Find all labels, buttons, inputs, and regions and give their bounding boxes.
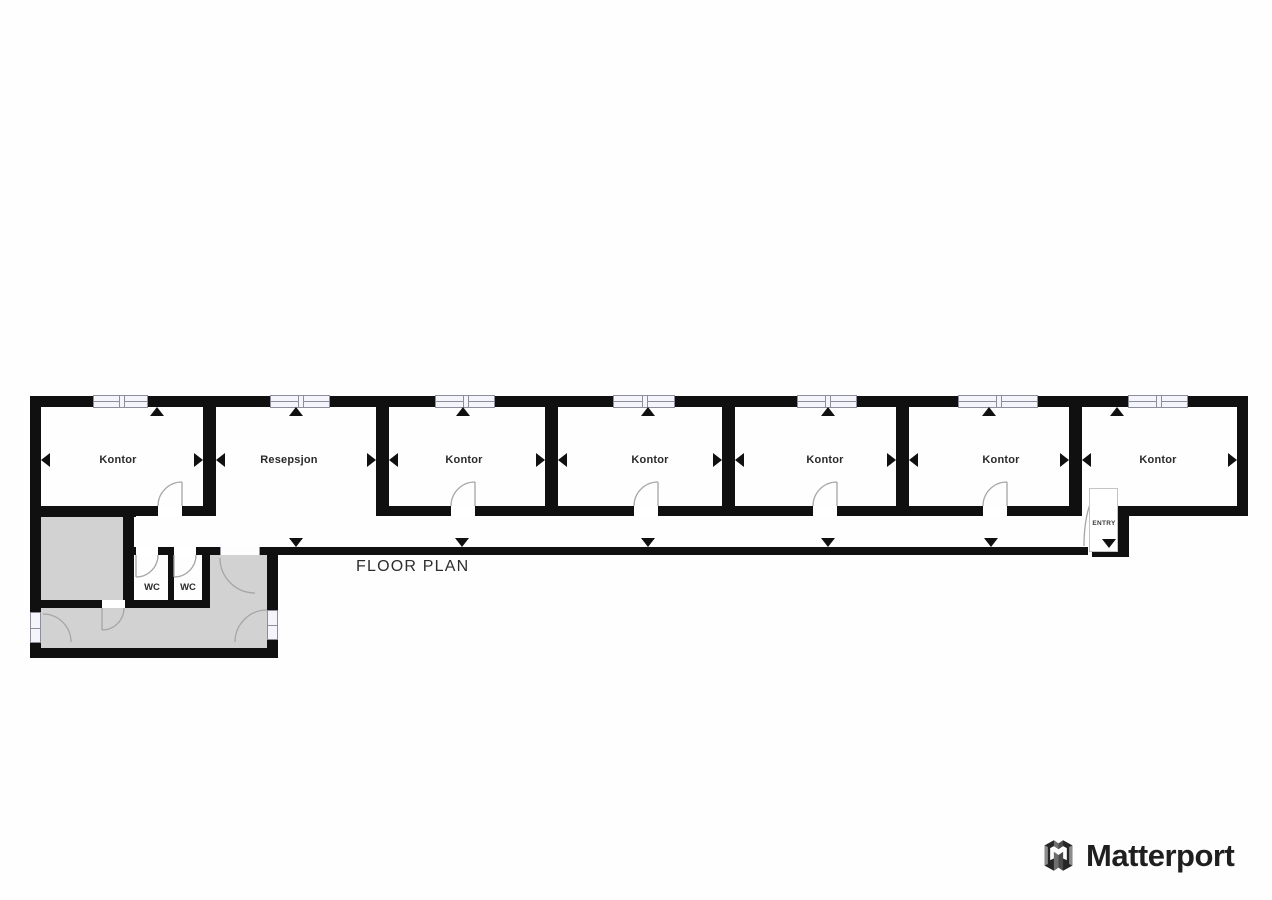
triangle-marker-icon (641, 538, 655, 547)
triangle-marker-icon (982, 407, 996, 416)
door-arc (634, 482, 658, 506)
wall (203, 396, 216, 516)
window-frame (119, 396, 125, 407)
wall (30, 506, 136, 517)
wall (722, 396, 735, 516)
triangle-marker-icon (984, 538, 998, 547)
triangle-marker-icon (641, 407, 655, 416)
wall (202, 547, 210, 608)
door-opening (634, 506, 658, 516)
triangle-marker-icon (1228, 453, 1237, 467)
door-opening (102, 600, 125, 608)
wall (30, 396, 41, 612)
matterport-branding: Matterport (1040, 837, 1234, 874)
door-opening (158, 506, 182, 516)
room-label-wc-2: WC (180, 582, 196, 593)
door-opening (813, 506, 837, 516)
triangle-marker-icon (194, 453, 203, 467)
door-opening (983, 506, 1007, 516)
triangle-marker-icon (289, 407, 303, 416)
room-label-kontor-3: Kontor (631, 454, 668, 466)
floor-plan-page: ENTRY Kontor Resepsjon Kontor Kontor Kon… (0, 0, 1272, 900)
triangle-marker-icon (216, 453, 225, 467)
door-arc (136, 555, 158, 577)
door-opening (136, 547, 158, 555)
door-arc (158, 482, 182, 506)
wall (267, 547, 278, 610)
window-frame (642, 396, 648, 407)
window-frame (268, 625, 277, 626)
wall (1069, 396, 1082, 516)
room-label-kontor-6: Kontor (1139, 454, 1176, 466)
matterport-logo-icon (1040, 837, 1077, 874)
triangle-marker-icon (389, 453, 398, 467)
triangle-marker-icon (887, 453, 896, 467)
door-arc (983, 482, 1007, 506)
wall (30, 648, 278, 658)
door-arc (451, 482, 475, 506)
room-label-wc-1: WC (144, 582, 160, 593)
side-room-fill (210, 555, 267, 648)
wall (123, 506, 134, 608)
triangle-marker-icon (735, 453, 744, 467)
triangle-marker-icon (1082, 453, 1091, 467)
triangle-marker-icon (456, 407, 470, 416)
wall (376, 396, 389, 516)
storage-room-fill (41, 517, 123, 600)
window-frame (31, 628, 40, 629)
wall (168, 547, 174, 608)
page-title: FLOOR PLAN (356, 558, 469, 576)
window-frame (463, 396, 469, 407)
triangle-marker-icon (455, 538, 469, 547)
door-opening (451, 506, 475, 516)
window (93, 395, 148, 408)
window-frame (1156, 396, 1162, 407)
window (1128, 395, 1188, 408)
room-label-resepsjon: Resepsjon (260, 454, 317, 466)
matterport-wordmark: Matterport (1086, 838, 1234, 874)
door-opening (174, 547, 196, 555)
room-label-kontor-1: Kontor (99, 454, 136, 466)
wall (1118, 506, 1129, 557)
window-frame (825, 396, 831, 407)
wall (1237, 396, 1248, 516)
triangle-marker-icon (150, 407, 164, 416)
triangle-marker-icon (821, 407, 835, 416)
room-label-kontor-4: Kontor (806, 454, 843, 466)
triangle-marker-icon (909, 453, 918, 467)
room-label-kontor-2: Kontor (445, 454, 482, 466)
window (958, 395, 1038, 408)
triangle-marker-icon (1060, 453, 1069, 467)
triangle-marker-icon (1102, 539, 1116, 548)
triangle-marker-icon (41, 453, 50, 467)
triangle-marker-icon (1110, 407, 1124, 416)
triangle-marker-icon (536, 453, 545, 467)
door-arc (174, 555, 196, 577)
wall (1118, 506, 1248, 516)
triangle-marker-icon (713, 453, 722, 467)
triangle-marker-icon (367, 453, 376, 467)
window-frame (996, 396, 1002, 407)
window (220, 547, 260, 555)
wall (545, 396, 558, 516)
door-arc (813, 482, 837, 506)
entry-label: ENTRY (1092, 520, 1115, 527)
window (267, 610, 278, 640)
triangle-marker-icon (558, 453, 567, 467)
window (30, 612, 41, 643)
triangle-marker-icon (289, 538, 303, 547)
triangle-marker-icon (821, 538, 835, 547)
wall (896, 396, 909, 516)
window-frame (298, 396, 304, 407)
room-label-kontor-5: Kontor (982, 454, 1019, 466)
